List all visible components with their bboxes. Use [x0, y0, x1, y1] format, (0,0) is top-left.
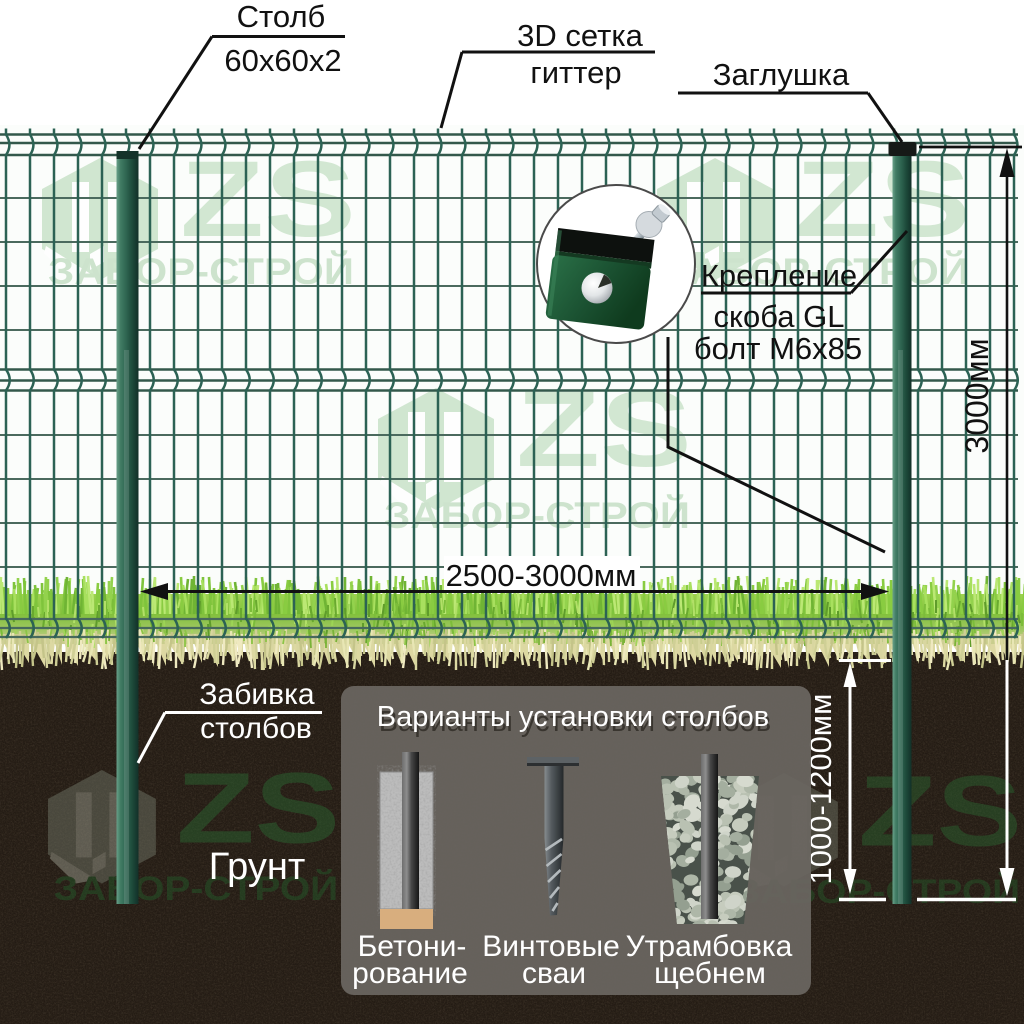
svg-text:сваи: сваи [522, 957, 586, 990]
svg-text:3D сетка: 3D сетка [517, 18, 643, 53]
svg-text:Забивка: Забивка [199, 678, 314, 711]
svg-text:скоба GL: скоба GL [714, 299, 845, 334]
svg-text:болт М6х85: болт М6х85 [694, 331, 862, 366]
svg-text:Варианты установки столбов: Варианты установки столбов [377, 701, 769, 733]
svg-text:Грунт: Грунт [209, 846, 306, 888]
svg-text:3000мм: 3000мм [959, 338, 995, 453]
svg-text:ZS: ZS [516, 368, 692, 489]
svg-text:рование: рование [352, 957, 468, 990]
svg-text:ZS: ZS [858, 756, 1022, 868]
svg-text:Столб: Столб [237, 0, 326, 34]
svg-text:Крепление: Крепление [701, 258, 857, 293]
svg-text:ЗАБОР-СТРОЙ: ЗАБОР-СТРОЙ [384, 494, 690, 536]
svg-text:столбов: столбов [200, 712, 312, 745]
svg-text:2500-3000мм: 2500-3000мм [446, 558, 637, 593]
svg-text:щебнем: щебнем [654, 957, 766, 990]
svg-text:Заглушка: Заглушка [713, 57, 850, 92]
svg-text:гиттер: гиттер [530, 55, 621, 90]
svg-text:60х60х2: 60х60х2 [224, 43, 341, 78]
